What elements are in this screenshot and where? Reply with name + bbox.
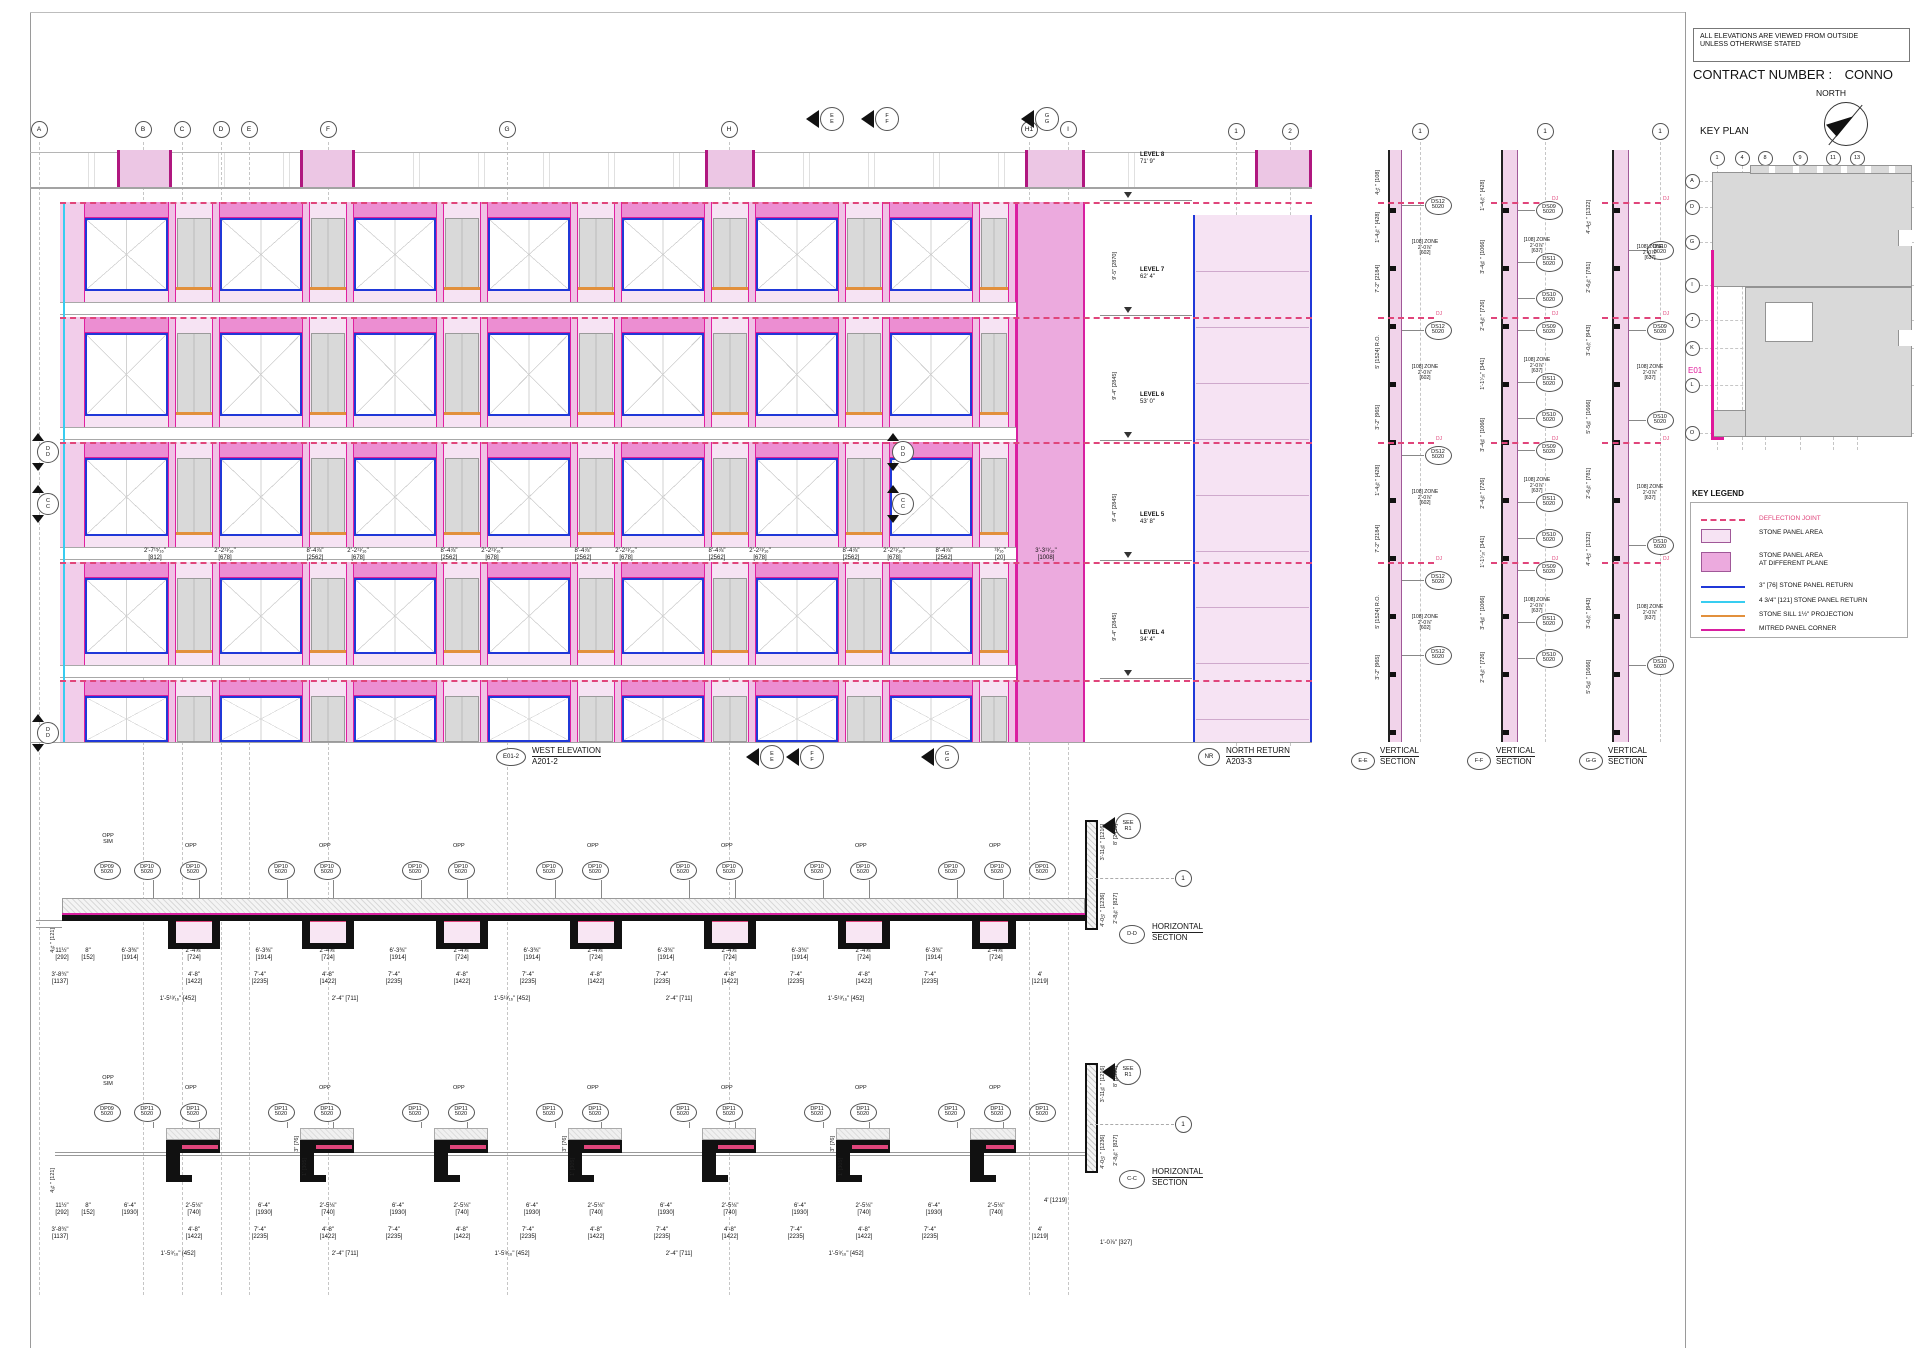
legend-label: 3" [76] STONE PANEL RETURN: [1759, 582, 1853, 590]
north-return-bubble: NR: [1198, 748, 1220, 766]
legend-swatch: [1701, 529, 1731, 543]
legend-swatch: [1701, 552, 1731, 572]
elevation-title-bubble: E01-2: [496, 748, 526, 766]
legend-label: STONE PANEL AREA: [1759, 529, 1823, 537]
legend-line-sample: [1701, 519, 1745, 521]
legend-line-sample: [1701, 615, 1745, 617]
elevation-title-text: WEST ELEVATION: [532, 746, 601, 757]
key-plan-building-upper: [1712, 172, 1912, 287]
key-plan-courtyard: [1765, 302, 1813, 342]
key-plan-building-sawtooth: [1750, 165, 1912, 174]
north-return-title: NR NORTH RETURNA203-3: [1198, 746, 1328, 776]
legend-line-sample: [1701, 586, 1745, 588]
key-plan-highlight-hook: [1711, 437, 1724, 440]
legend-label: DEFLECTION JOINT: [1759, 515, 1821, 523]
legend-label: STONE PANEL AREA AT DIFFERENT PLANE: [1759, 552, 1828, 568]
legend-label: STONE SILL 1½" PROJECTION: [1759, 611, 1853, 619]
legend-line-sample: [1701, 601, 1745, 603]
key-plan-highlight-line: [1711, 250, 1714, 440]
key-legend-box: DEFLECTION JOINTSTONE PANEL AREASTONE PA…: [1690, 502, 1908, 638]
drawing-sheet: LEVEL 871' 9"LEVEL 762' 4"LEVEL 653' 0"L…: [0, 0, 1920, 1358]
elevation-title-sub: A201-2: [532, 757, 558, 766]
key-legend-title: KEY LEGEND: [1692, 489, 1744, 498]
key-plan: E01: [0, 0, 1920, 1358]
legend-line-sample: [1701, 629, 1745, 631]
elevation-title: E01-2 WEST ELEVATIONA201-2: [496, 746, 656, 776]
key-plan-notch-2: [1898, 330, 1912, 346]
key-plan-notch-1: [1898, 230, 1912, 246]
legend-label: MITRED PANEL CORNER: [1759, 625, 1836, 633]
key-plan-highlight-label: E01: [1688, 366, 1702, 375]
legend-label: 4 3/4" [121] STONE PANEL RETURN: [1759, 597, 1867, 605]
key-plan-building-tab: [1712, 410, 1746, 437]
